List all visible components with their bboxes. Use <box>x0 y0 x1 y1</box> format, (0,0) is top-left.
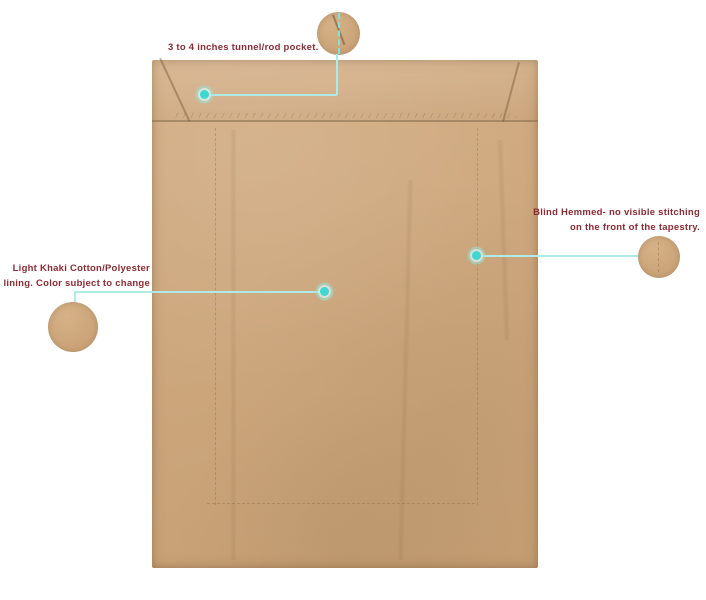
lining-detail-circle <box>48 302 98 352</box>
lining-leader-horizontal <box>74 291 320 293</box>
lining-label: Light Khaki Cotton/Polyester lining. Col… <box>0 261 150 291</box>
rod-pocket-band <box>152 60 538 122</box>
blind-hem-leader-horizontal <box>483 255 638 257</box>
rod-pocket-label: 3 to 4 inches tunnel/rod pocket. <box>168 40 319 55</box>
blind-hem-detail-circle <box>638 236 680 278</box>
zigzag-stitching <box>174 113 516 118</box>
fabric-crease <box>497 140 511 340</box>
fabric-crease <box>230 130 237 560</box>
pocket-measure-dash-line <box>338 13 340 53</box>
rod-pocket-hotspot-dot[interactable] <box>200 90 209 99</box>
rod-pocket-leader-vertical <box>336 54 338 95</box>
lining-stitch-right <box>477 128 478 505</box>
rod-pocket-detail-circle <box>317 12 360 55</box>
blind-hem-label-line2: on the front of the tapestry. <box>533 220 700 235</box>
blind-hem-hotspot-dot[interactable] <box>472 251 481 260</box>
lining-label-line1: Light Khaki Cotton/Polyester <box>0 261 150 276</box>
blind-hem-label-line1: Blind Hemmed- no visible stitching <box>533 205 700 220</box>
rod-pocket-leader-horizontal <box>210 94 337 96</box>
lining-label-line2: lining. Color subject to change <box>0 276 150 291</box>
tapestry-back-fabric <box>152 60 538 568</box>
tapestry-annotation-image: 3 to 4 inches tunnel/rod pocket. Blind H… <box>0 0 706 600</box>
blind-hem-label: Blind Hemmed- no visible stitching on th… <box>533 205 700 235</box>
lining-stitch-bottom <box>207 503 475 504</box>
lining-stitch-left <box>215 128 216 505</box>
blind-hem-stitch-detail <box>658 242 659 272</box>
lining-hotspot-dot[interactable] <box>320 287 329 296</box>
